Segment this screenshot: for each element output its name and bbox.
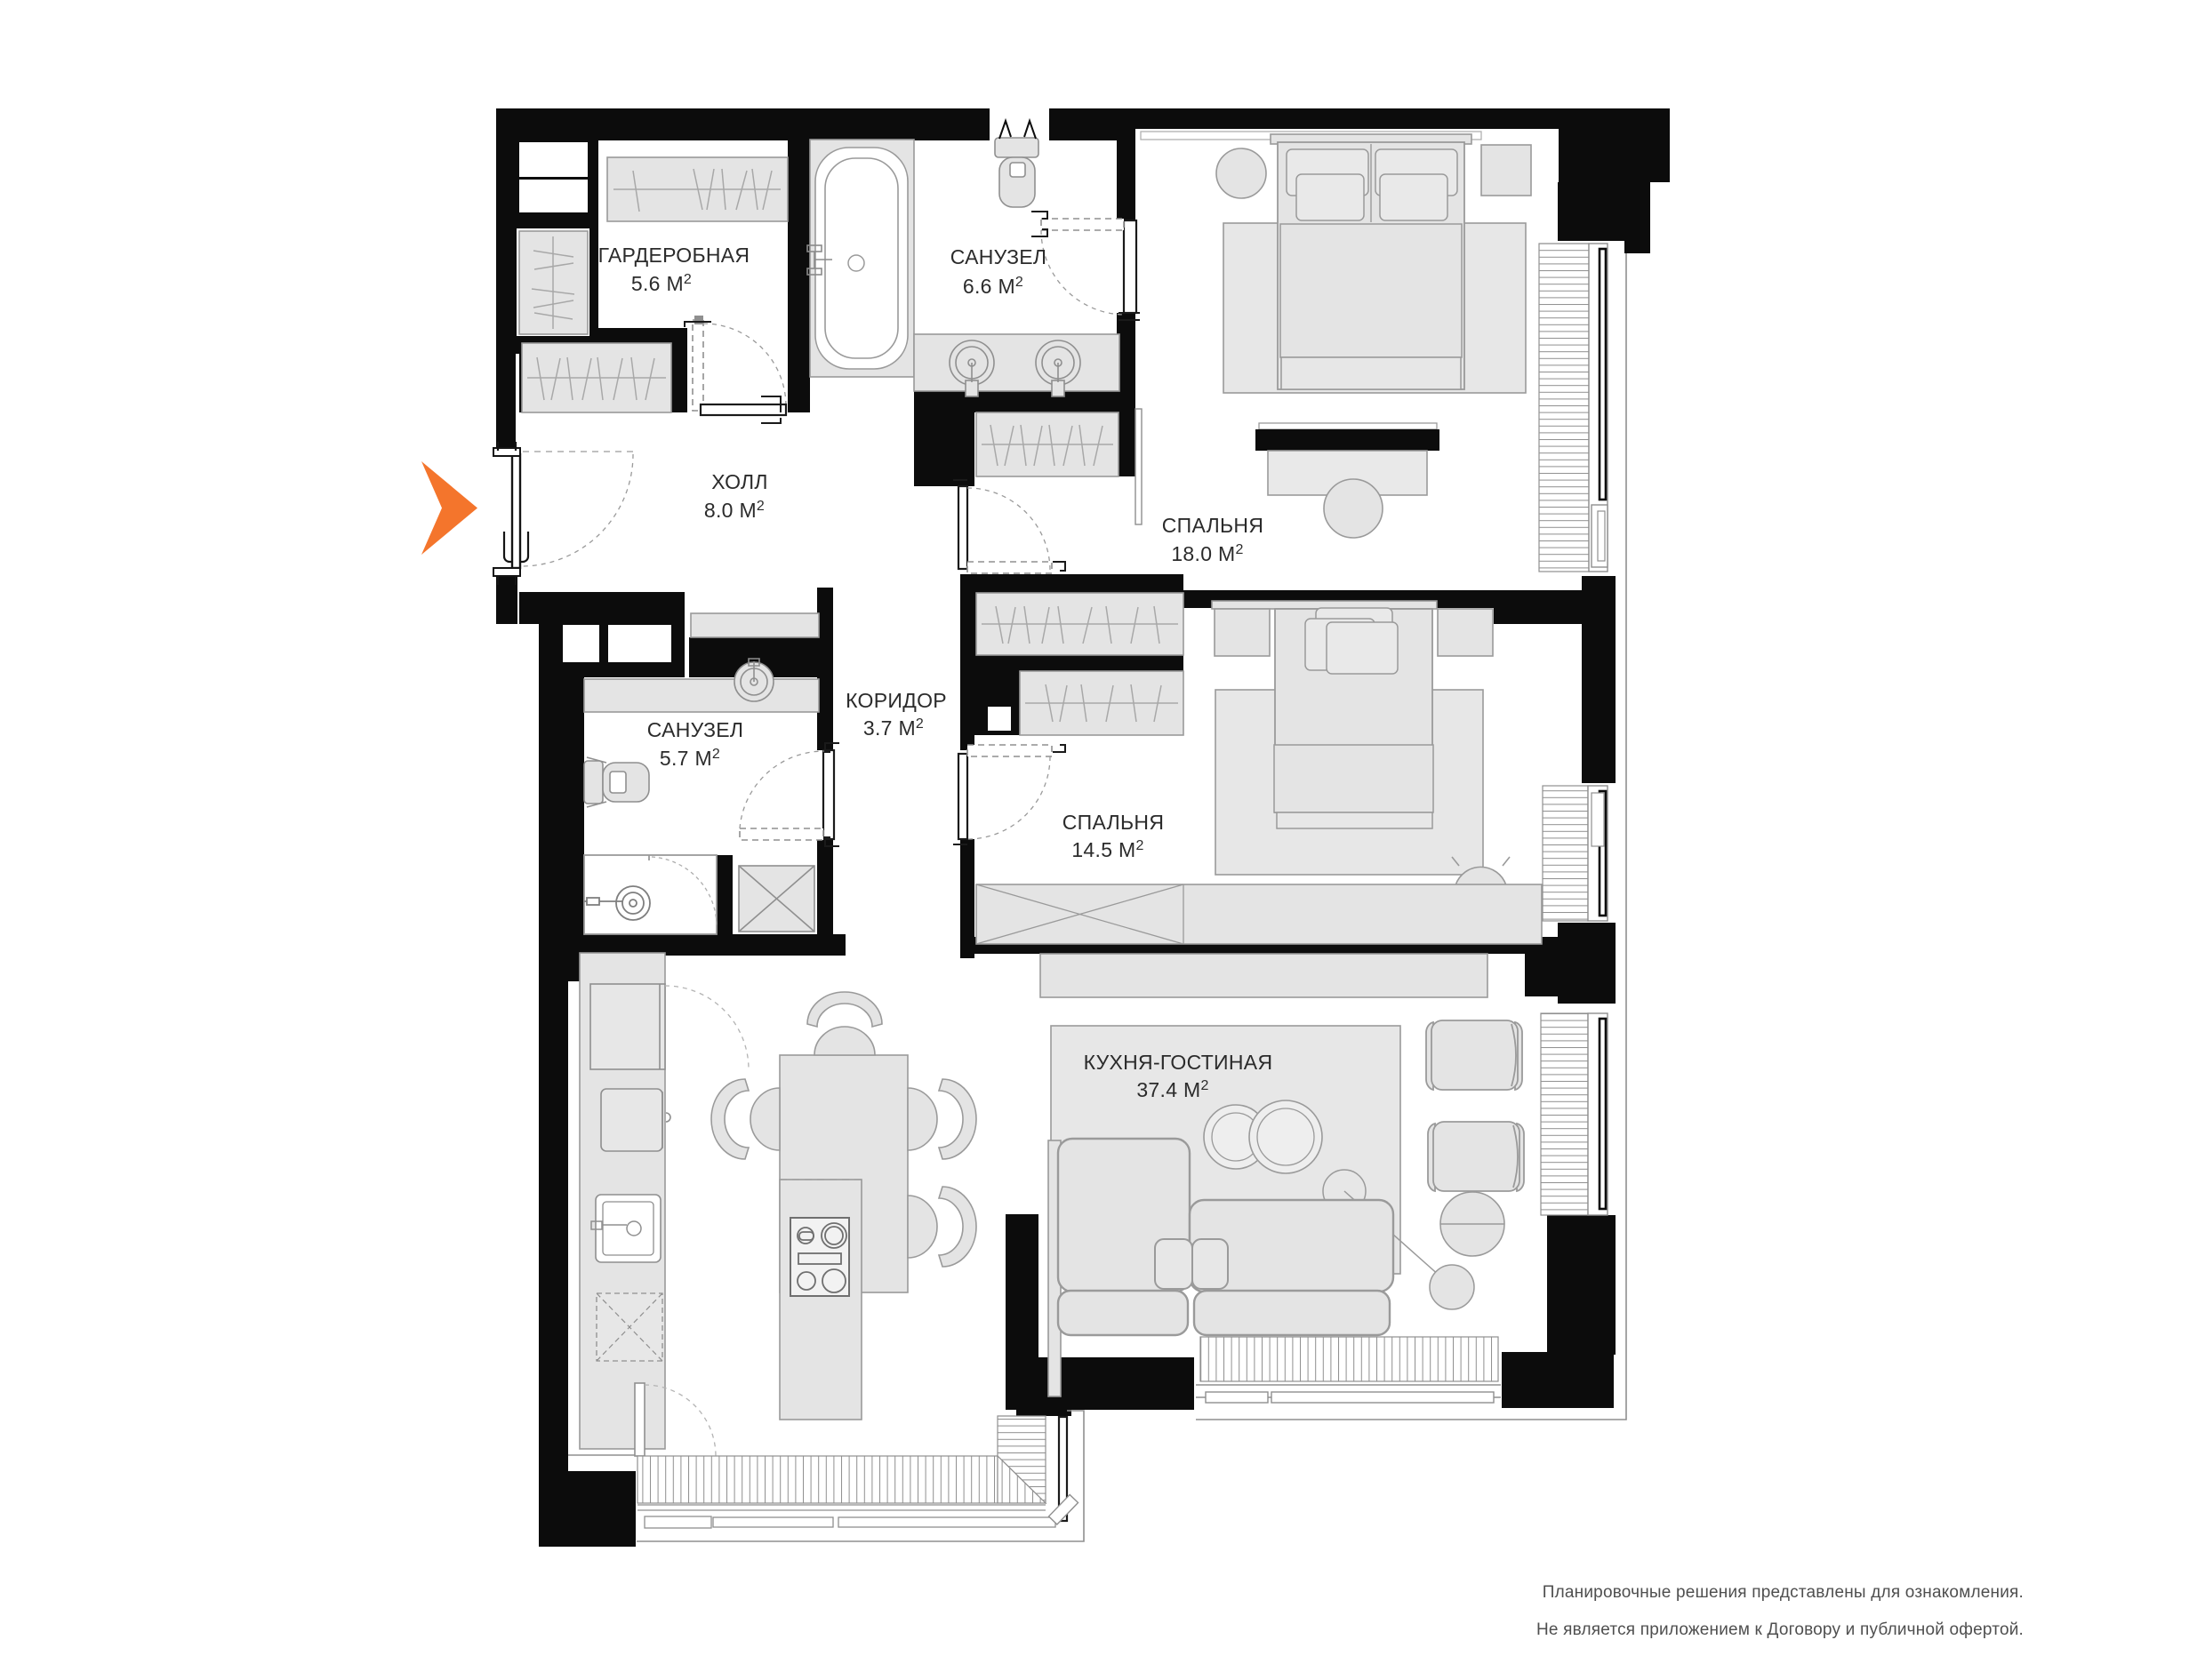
svg-text:6.6 М2: 6.6 М2: [963, 275, 1023, 298]
svg-text:5.6 М2: 5.6 М2: [631, 272, 692, 295]
svg-text:ГАРДЕРОБНАЯ: ГАРДЕРОБНАЯ: [598, 244, 750, 267]
svg-text:САНУЗЕЛ: САНУЗЕЛ: [647, 718, 744, 741]
svg-text:8.0 М2: 8.0 М2: [704, 499, 765, 522]
svg-text:18.0 М2: 18.0 М2: [1171, 542, 1243, 565]
svg-text:Не является приложением к Дого: Не является приложением к Договору и пуб…: [1536, 1620, 2024, 1639]
svg-text:14.5 М2: 14.5 М2: [1071, 838, 1143, 861]
svg-text:Планировочные решения представ: Планировочные решения представлены для о…: [1543, 1583, 2024, 1602]
svg-text:5.7 М2: 5.7 М2: [660, 747, 720, 770]
svg-text:3.7 М2: 3.7 М2: [863, 716, 924, 740]
svg-text:ХОЛЛ: ХОЛЛ: [711, 470, 768, 493]
svg-text:37.4 М2: 37.4 М2: [1136, 1078, 1208, 1101]
svg-text:КУХНЯ-ГОСТИНАЯ: КУХНЯ-ГОСТИНАЯ: [1084, 1051, 1273, 1074]
svg-text:СПАЛЬНЯ: СПАЛЬНЯ: [1062, 811, 1165, 834]
svg-text:СПАЛЬНЯ: СПАЛЬНЯ: [1162, 514, 1264, 537]
svg-text:САНУЗЕЛ: САНУЗЕЛ: [950, 245, 1047, 268]
svg-text:КОРИДОР: КОРИДОР: [846, 689, 947, 712]
